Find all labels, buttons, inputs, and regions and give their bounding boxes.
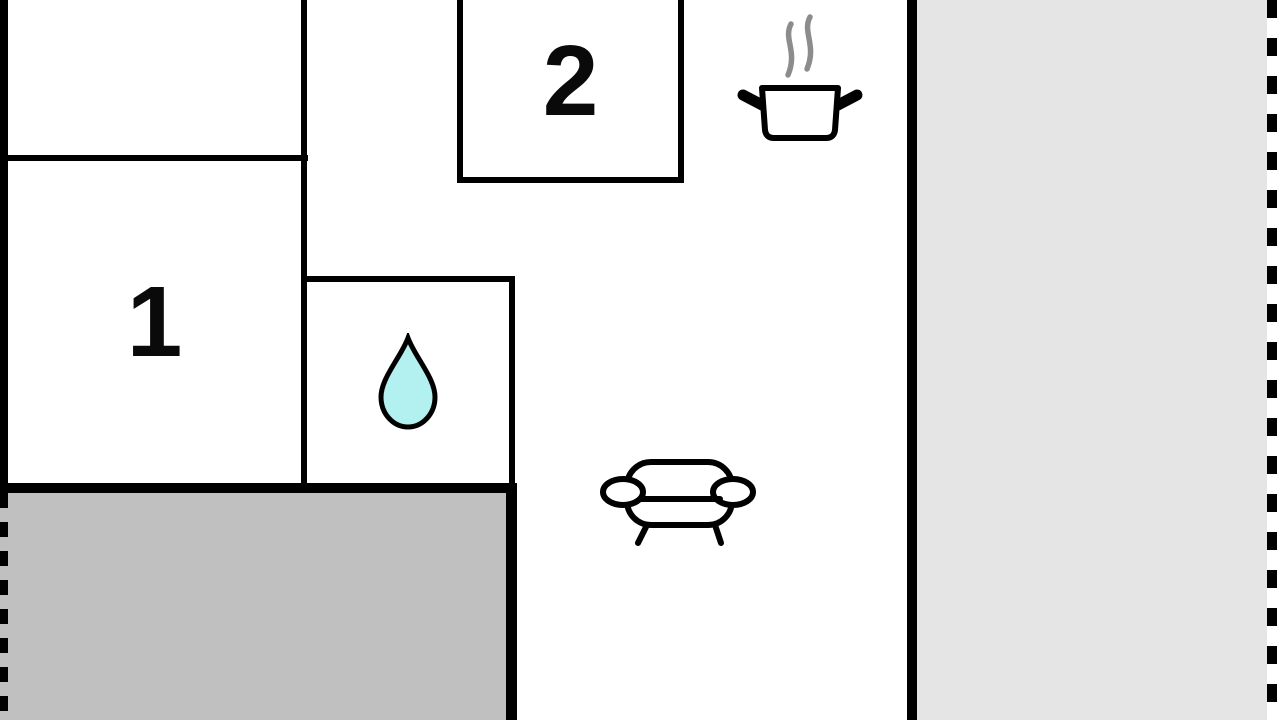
floorplan: 1 2: [0, 0, 1280, 720]
room-1-label: 1: [127, 272, 183, 372]
room-1: 1: [8, 161, 301, 483]
terrace-right: [917, 0, 1267, 720]
dashed-boundary-right: [1267, 0, 1277, 720]
terrace-bottom-left: [0, 487, 511, 720]
wall-left-outer: [0, 0, 8, 492]
cooking-pot-icon: [728, 8, 872, 148]
water-drop-icon: [376, 333, 440, 433]
wall-terrace-right: [506, 483, 517, 720]
room-2-label: 2: [543, 31, 599, 131]
dashed-boundary-left: [0, 493, 8, 720]
sofa-icon: [600, 440, 760, 552]
steam-icon: [788, 17, 811, 75]
room-top-left: [8, 0, 301, 155]
room-2: 2: [457, 0, 684, 183]
wall-bathroom-right: [509, 276, 515, 488]
wall-right-main: [907, 0, 917, 720]
wall-bottom-thick: [0, 483, 517, 493]
